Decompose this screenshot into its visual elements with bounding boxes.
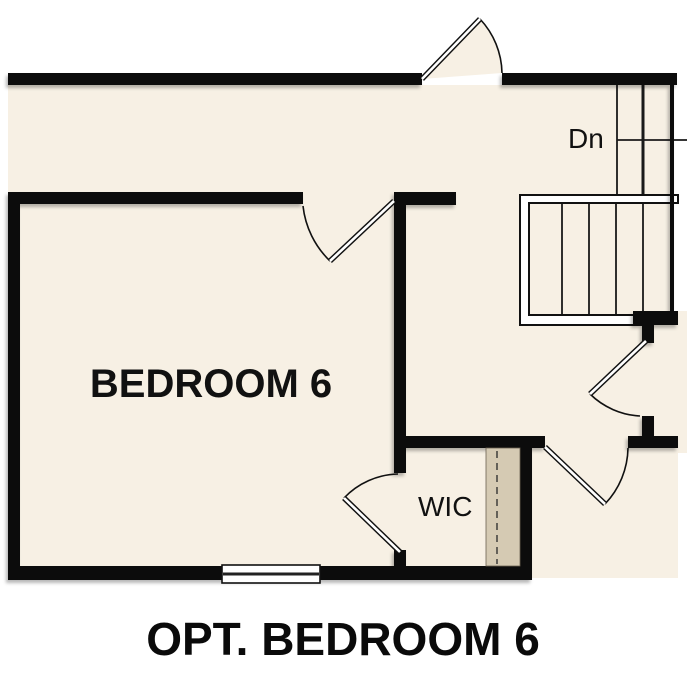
right-edge-floor bbox=[670, 311, 687, 453]
stair-bottom-wall bbox=[633, 311, 678, 325]
floor-plan-page: BEDROOM 6 WIC Dn OPT. BEDROOM 6 bbox=[0, 0, 687, 687]
floor-plan-svg: BEDROOM 6 WIC Dn OPT. BEDROOM 6 bbox=[0, 0, 687, 687]
wic-label: WIC bbox=[418, 491, 472, 522]
bedroom-label: BEDROOM 6 bbox=[90, 362, 332, 406]
floor-areas bbox=[8, 19, 687, 580]
closet-shelf bbox=[486, 448, 520, 566]
stairwell-right-wall bbox=[670, 85, 674, 311]
landing-wall-stub bbox=[394, 192, 456, 205]
hall-bottom-wall-right bbox=[628, 436, 678, 448]
top-wall-left bbox=[8, 73, 422, 85]
wic-door-jamb bbox=[394, 550, 406, 566]
caption: OPT. BEDROOM 6 bbox=[146, 613, 540, 665]
bedroom-window bbox=[222, 565, 320, 583]
wic-right-wall bbox=[520, 436, 532, 580]
top-wall-right bbox=[502, 73, 677, 85]
bedroom-top-wall bbox=[8, 192, 303, 204]
bedroom-left-wall bbox=[8, 192, 20, 580]
wic-shelf bbox=[486, 448, 520, 566]
hall-door-jamb-lower bbox=[642, 416, 654, 436]
dn-label: Dn bbox=[568, 123, 604, 154]
bedroom-right-wall bbox=[394, 192, 406, 473]
